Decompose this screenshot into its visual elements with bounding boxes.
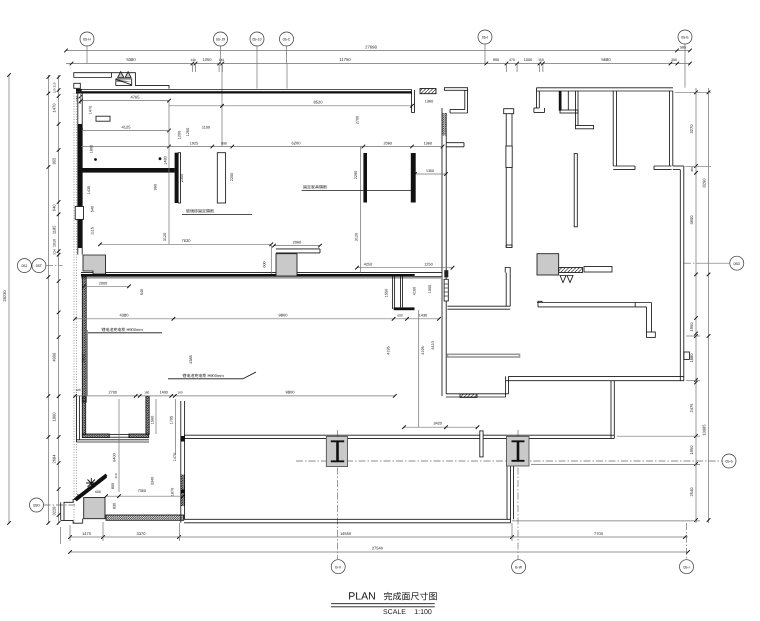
svg-text:855: 855: [52, 157, 57, 164]
svg-text:900: 900: [493, 58, 499, 62]
svg-text:1:100: 1:100: [414, 609, 432, 616]
svg-text:4380: 4380: [120, 313, 130, 318]
svg-text:600: 600: [263, 261, 267, 267]
svg-text:7700: 7700: [594, 531, 604, 536]
svg-text:1250: 1250: [424, 262, 432, 266]
svg-text:4160: 4160: [413, 287, 417, 295]
svg-text:1800: 1800: [90, 145, 94, 153]
svg-text:524: 524: [53, 249, 57, 255]
svg-text:5680: 5680: [601, 57, 611, 62]
svg-text:2700: 2700: [108, 391, 116, 395]
svg-text:120: 120: [75, 388, 80, 392]
svg-text:1360: 1360: [426, 169, 434, 173]
svg-text:180: 180: [144, 391, 149, 395]
svg-text:1430: 1430: [419, 314, 427, 318]
svg-text:3120: 3120: [163, 233, 167, 241]
svg-text:05-I: 05-I: [683, 565, 689, 569]
svg-text:05-I: 05-I: [482, 36, 488, 40]
svg-text:2684: 2684: [52, 454, 57, 464]
svg-text:2000: 2000: [99, 281, 107, 285]
svg-text:1200: 1200: [178, 131, 182, 139]
svg-text:05-E: 05-E: [681, 36, 689, 40]
svg-text:3270: 3270: [689, 124, 694, 134]
svg-text:1470: 1470: [82, 531, 92, 536]
svg-text:830: 830: [113, 503, 117, 509]
svg-text:27698: 27698: [365, 45, 377, 50]
svg-text:1000: 1000: [524, 58, 532, 62]
svg-text:锂电池充电柜 H900mm: 锂电池充电柜 H900mm: [101, 327, 143, 332]
svg-text:160: 160: [177, 391, 182, 395]
svg-text:1360: 1360: [424, 141, 432, 145]
svg-text:150: 150: [75, 96, 79, 101]
svg-text:B-W: B-W: [515, 565, 523, 569]
svg-text:固定家具隔断: 固定家具隔断: [303, 184, 327, 189]
svg-text:1950: 1950: [689, 445, 694, 455]
svg-text:7360: 7360: [138, 489, 146, 493]
svg-text:150: 150: [538, 58, 544, 62]
svg-text:3340: 3340: [150, 477, 154, 485]
svg-text:8290: 8290: [702, 178, 707, 188]
svg-text:4195: 4195: [387, 346, 391, 354]
svg-text:890: 890: [221, 141, 227, 145]
svg-text:1115: 1115: [91, 227, 95, 235]
svg-text:140: 140: [219, 58, 225, 62]
svg-text:1100: 1100: [202, 125, 210, 129]
svg-text:1435: 1435: [87, 186, 91, 194]
svg-text:1010: 1010: [53, 239, 57, 247]
svg-text:7630: 7630: [182, 238, 192, 243]
svg-text:1800: 1800: [52, 412, 57, 422]
svg-text:2060: 2060: [293, 240, 301, 244]
svg-text:05-C: 05-C: [283, 38, 291, 42]
svg-text:14550: 14550: [340, 531, 352, 536]
svg-text:6400: 6400: [113, 453, 117, 461]
svg-text:300: 300: [690, 167, 694, 172]
svg-text:3228: 3228: [52, 506, 57, 516]
svg-text:05J: 05J: [22, 264, 28, 268]
svg-text:05D: 05D: [734, 262, 741, 266]
svg-text:4250: 4250: [364, 262, 372, 266]
svg-text:800: 800: [111, 483, 115, 489]
svg-text:1185: 1185: [52, 225, 57, 234]
svg-text:11750: 11750: [339, 57, 351, 62]
svg-text:4765: 4765: [131, 95, 141, 100]
svg-text:PLAN: PLAN: [348, 591, 375, 603]
svg-text:2290: 2290: [354, 171, 358, 179]
svg-text:8520: 8520: [314, 100, 324, 105]
svg-text:600: 600: [397, 314, 403, 318]
svg-text:2475: 2475: [689, 403, 694, 413]
svg-text:1795: 1795: [170, 416, 174, 424]
svg-text:完成面尺寸图: 完成面尺寸图: [383, 592, 437, 602]
svg-text:9800: 9800: [286, 390, 296, 395]
svg-text:1360: 1360: [425, 100, 433, 104]
svg-text:1400: 1400: [159, 391, 167, 395]
svg-text:10085: 10085: [702, 424, 707, 436]
svg-text:4385: 4385: [189, 355, 193, 363]
svg-text:6200: 6200: [292, 140, 302, 145]
svg-text:1550: 1550: [384, 289, 388, 297]
svg-text:锂电池充电柜 H900mm: 锂电池充电柜 H900mm: [182, 373, 224, 378]
svg-text:1480: 1480: [164, 156, 168, 164]
svg-text:640: 640: [52, 204, 57, 211]
svg-text:120: 120: [53, 88, 57, 93]
svg-text:2540: 2540: [689, 487, 694, 497]
svg-text:1925: 1925: [190, 141, 198, 145]
svg-text:05-H: 05-H: [83, 38, 91, 42]
svg-text:960: 960: [153, 184, 157, 190]
svg-text:310: 310: [53, 82, 57, 87]
svg-text:05-J9: 05-J9: [216, 38, 225, 42]
svg-text:05-5: 05-5: [725, 460, 732, 464]
svg-text:540: 540: [140, 289, 144, 295]
svg-text:4125: 4125: [122, 124, 132, 129]
svg-text:1470: 1470: [52, 103, 57, 113]
svg-text:2200: 2200: [230, 173, 234, 181]
svg-text:SCALE: SCALE: [383, 609, 406, 616]
svg-text:4900: 4900: [52, 352, 57, 362]
svg-text:2700: 2700: [356, 116, 360, 124]
svg-text:05T: 05T: [36, 264, 43, 268]
svg-text:3120: 3120: [355, 233, 359, 241]
svg-text:1560: 1560: [151, 416, 155, 424]
svg-text:1870: 1870: [171, 488, 175, 496]
svg-text:3420: 3420: [433, 422, 441, 426]
svg-text:1950: 1950: [689, 322, 694, 332]
svg-text:4600: 4600: [689, 215, 694, 225]
svg-text:1260: 1260: [186, 128, 190, 136]
svg-text:1470: 1470: [173, 453, 177, 461]
svg-text:210: 210: [114, 473, 118, 478]
svg-text:27540: 27540: [372, 545, 384, 550]
svg-text:1000: 1000: [428, 285, 432, 293]
svg-text:B-V: B-V: [335, 565, 342, 569]
svg-text:28230: 28230: [2, 290, 7, 302]
svg-text:9800: 9800: [279, 313, 289, 318]
svg-text:3900: 3900: [82, 354, 86, 362]
svg-text:2300: 2300: [180, 174, 184, 182]
svg-text:300: 300: [671, 58, 677, 62]
svg-text:5380: 5380: [126, 57, 136, 62]
svg-text:470: 470: [509, 58, 515, 62]
svg-text:3370: 3370: [137, 531, 147, 536]
svg-text:1050: 1050: [203, 57, 213, 62]
svg-text:600: 600: [95, 490, 101, 494]
svg-text:2060: 2060: [383, 141, 391, 145]
svg-text:1470: 1470: [89, 106, 93, 114]
svg-text:4410: 4410: [431, 341, 435, 349]
svg-text:05-10: 05-10: [252, 38, 261, 42]
svg-text:4195: 4195: [421, 346, 425, 354]
svg-text:540: 540: [91, 206, 95, 212]
svg-text:05D: 05D: [33, 504, 40, 508]
svg-text:玻璃砖固定隔断: 玻璃砖固定隔断: [186, 209, 214, 214]
svg-text:140: 140: [190, 58, 196, 62]
